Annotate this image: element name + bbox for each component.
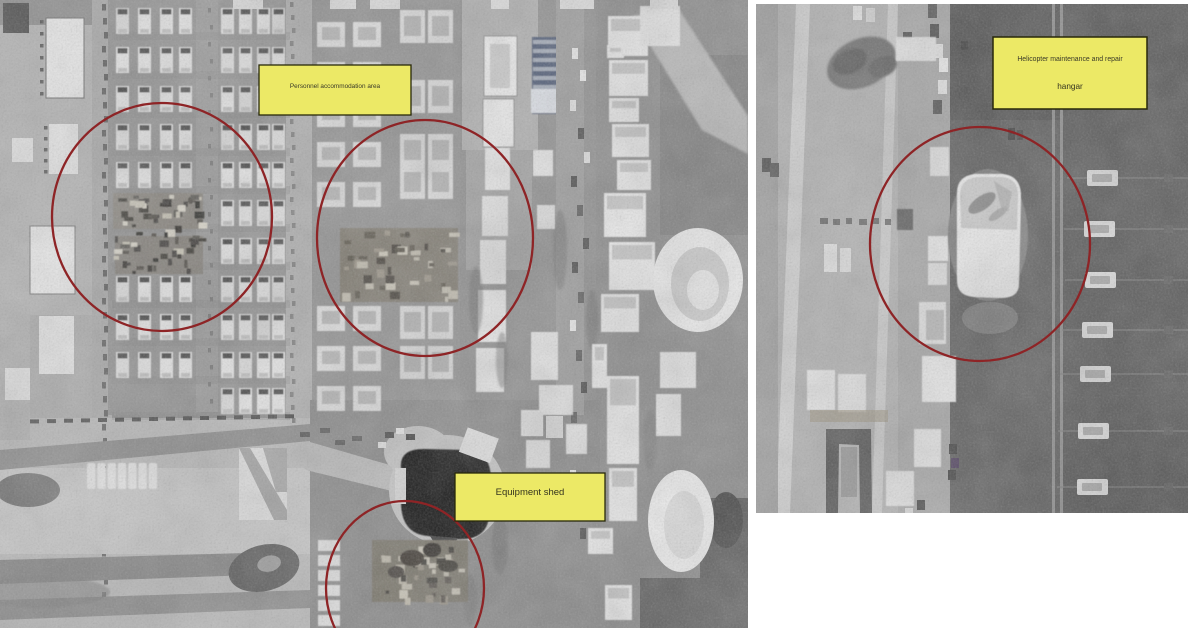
svg-text:Helicopter maintenance and rep: Helicopter maintenance and repair [1017, 56, 1123, 63]
svg-text:Equipment shed: Equipment shed [496, 487, 565, 498]
svg-text:Personnel accommodation area: Personnel accommodation area [290, 83, 381, 90]
svg-text:hangar: hangar [1057, 82, 1083, 91]
